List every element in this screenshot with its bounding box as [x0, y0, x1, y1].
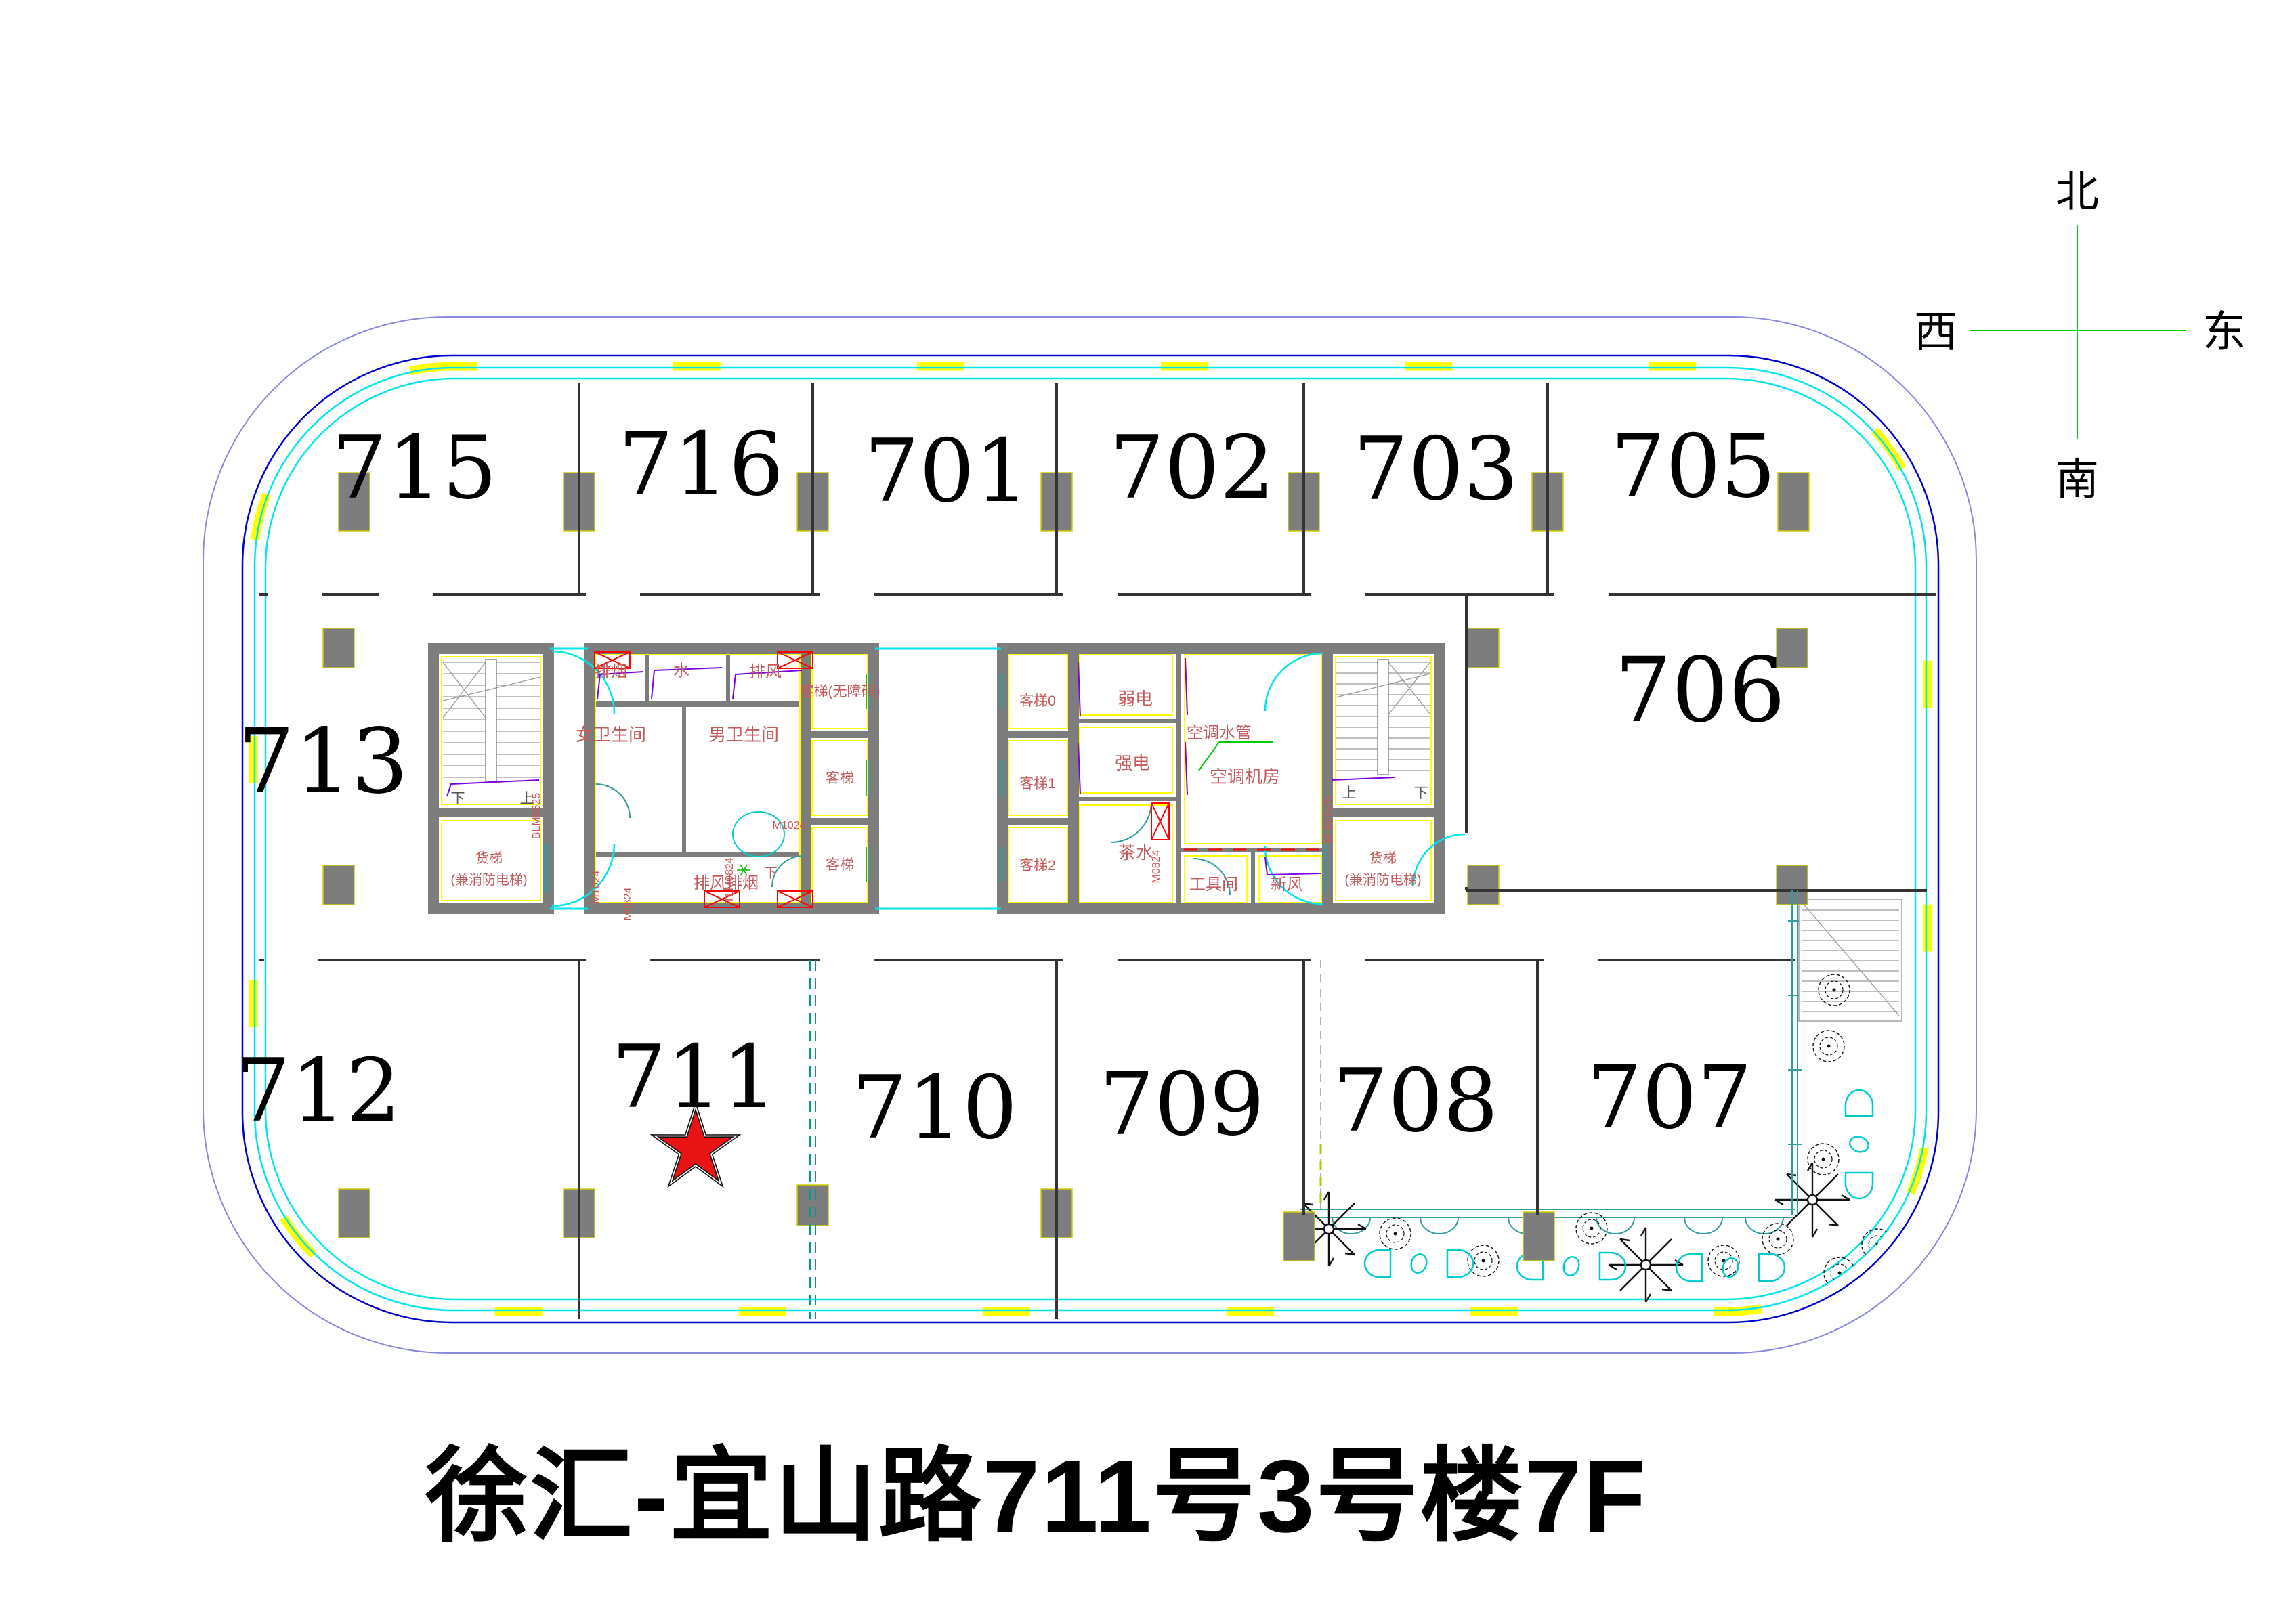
column	[1283, 1212, 1315, 1261]
compass: 北 南 西 东	[1914, 167, 2246, 505]
door-tag: BLM0525	[531, 793, 543, 840]
ac-pipe-label: 空调水管	[1187, 724, 1252, 742]
freight-elevator-east-label2: (兼消防电梯)	[1344, 872, 1421, 888]
shaft-smoke-label: 排烟	[595, 663, 627, 681]
room-label-701: 701	[864, 421, 1029, 522]
weak-power-label: 弱电	[1118, 689, 1153, 709]
room-label-716: 716	[618, 414, 784, 515]
elevator-bank2-3-label: 客梯2	[1019, 858, 1056, 873]
elevator-bank1-2-label: 客梯	[826, 771, 854, 786]
freight-elevator-east-label1: 货梯	[1369, 850, 1397, 866]
fresh-air-label: 新风	[1271, 875, 1303, 894]
service-core: 下 上 上 下	[433, 649, 1465, 909]
room-label-705: 705	[1611, 416, 1776, 517]
stair-down-label: 下	[1414, 785, 1428, 801]
room-label-715: 715	[332, 418, 497, 519]
door-tag: M0824	[622, 887, 634, 920]
ac-plant-room-label: 空调机房	[1210, 766, 1280, 787]
toilet-female-label: 女卫生间	[576, 725, 646, 745]
stair-down-label: 下	[451, 791, 465, 806]
dashed-partition-711-710	[810, 960, 815, 1319]
terrace-external-stair	[1799, 899, 1902, 1021]
room-label-707: 707	[1587, 1047, 1752, 1148]
door-tag: TLM0824	[724, 857, 736, 903]
drawing-title: 徐汇-宜山路711号3号楼7F	[425, 1439, 1647, 1554]
compass-south-label: 南	[2056, 455, 2099, 505]
floor-plan-drawing: 下 上 上 下	[0, 0, 2296, 1600]
column	[1468, 865, 1499, 905]
column	[1523, 1212, 1554, 1261]
elevator-bank2-2-label: 客梯1	[1019, 776, 1056, 792]
column	[323, 628, 354, 668]
core-block-services	[1073, 649, 1327, 909]
elevator-bank1-1-label: 客梯(无障碍)	[800, 684, 880, 699]
column	[1468, 628, 1499, 668]
door-tag: M1024	[773, 820, 806, 831]
column	[797, 1185, 828, 1226]
pantry-label: 茶水	[1118, 842, 1153, 863]
column	[1778, 473, 1809, 531]
compass-west-label: 西	[1914, 307, 1957, 358]
freight-elevator-west-label1: 货梯	[475, 850, 503, 866]
wall-707-terrace	[1792, 890, 1798, 1215]
door-tag: BLM0525	[1323, 796, 1335, 843]
freight-elevator-west-label2: (兼消防电梯)	[450, 872, 527, 888]
floor-plan-canvas: 下 上 上 下	[0, 0, 2296, 1600]
column	[323, 865, 354, 905]
duct-down-label: 下	[764, 866, 778, 881]
column	[339, 1189, 370, 1238]
shaft-water-label: 水	[673, 662, 689, 680]
room-label-703: 703	[1353, 419, 1518, 520]
room-label-706: 706	[1615, 639, 1785, 743]
stair-up-label: 上	[1342, 785, 1357, 801]
shaft-vent-label: 排风	[749, 663, 782, 681]
door-tag: M1024	[591, 870, 602, 903]
strong-power-label: 强电	[1115, 753, 1150, 773]
compass-east-label: 东	[2203, 307, 2246, 358]
room-label-708: 708	[1333, 1051, 1498, 1152]
elevator-bank2-1-label: 客梯0	[1019, 693, 1056, 709]
compass-north-label: 北	[2056, 167, 2099, 217]
compass-cross-icon	[1970, 225, 2186, 439]
toilet-male-label: 男卫生间	[708, 725, 779, 745]
elevator-bank1-3-label: 客梯	[826, 857, 854, 873]
room-label-709: 709	[1099, 1054, 1264, 1155]
room-label-712: 712	[236, 1041, 401, 1142]
room-label-710: 710	[852, 1058, 1017, 1159]
door-tag: M0824	[1151, 850, 1162, 883]
room-label-702: 702	[1109, 418, 1275, 519]
room-label-713: 713	[238, 710, 408, 814]
tool-room-label: 工具间	[1189, 875, 1238, 894]
